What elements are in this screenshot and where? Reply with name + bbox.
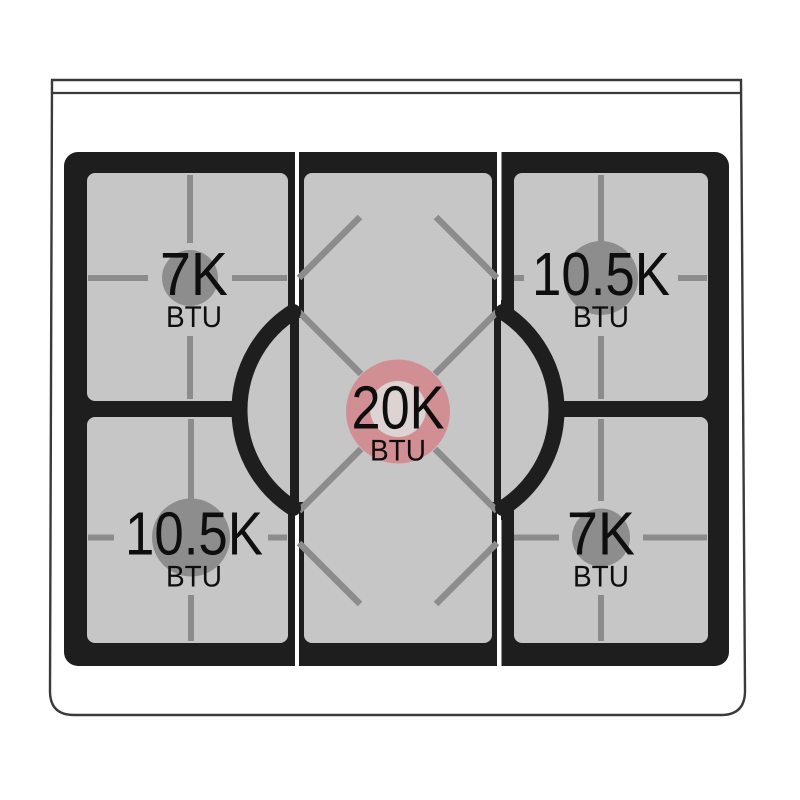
svg-text:BTU: BTU: [573, 561, 629, 594]
svg-text:BTU: BTU: [573, 301, 629, 334]
svg-text:10.5K: 10.5K: [125, 500, 263, 568]
svg-text:BTU: BTU: [370, 435, 426, 468]
svg-text:7K: 7K: [160, 240, 228, 308]
svg-text:7K: 7K: [567, 500, 635, 568]
svg-text:20K: 20K: [352, 374, 445, 442]
svg-text:BTU: BTU: [166, 561, 222, 594]
svg-text:BTU: BTU: [166, 301, 222, 334]
svg-text:10.5K: 10.5K: [532, 240, 670, 308]
